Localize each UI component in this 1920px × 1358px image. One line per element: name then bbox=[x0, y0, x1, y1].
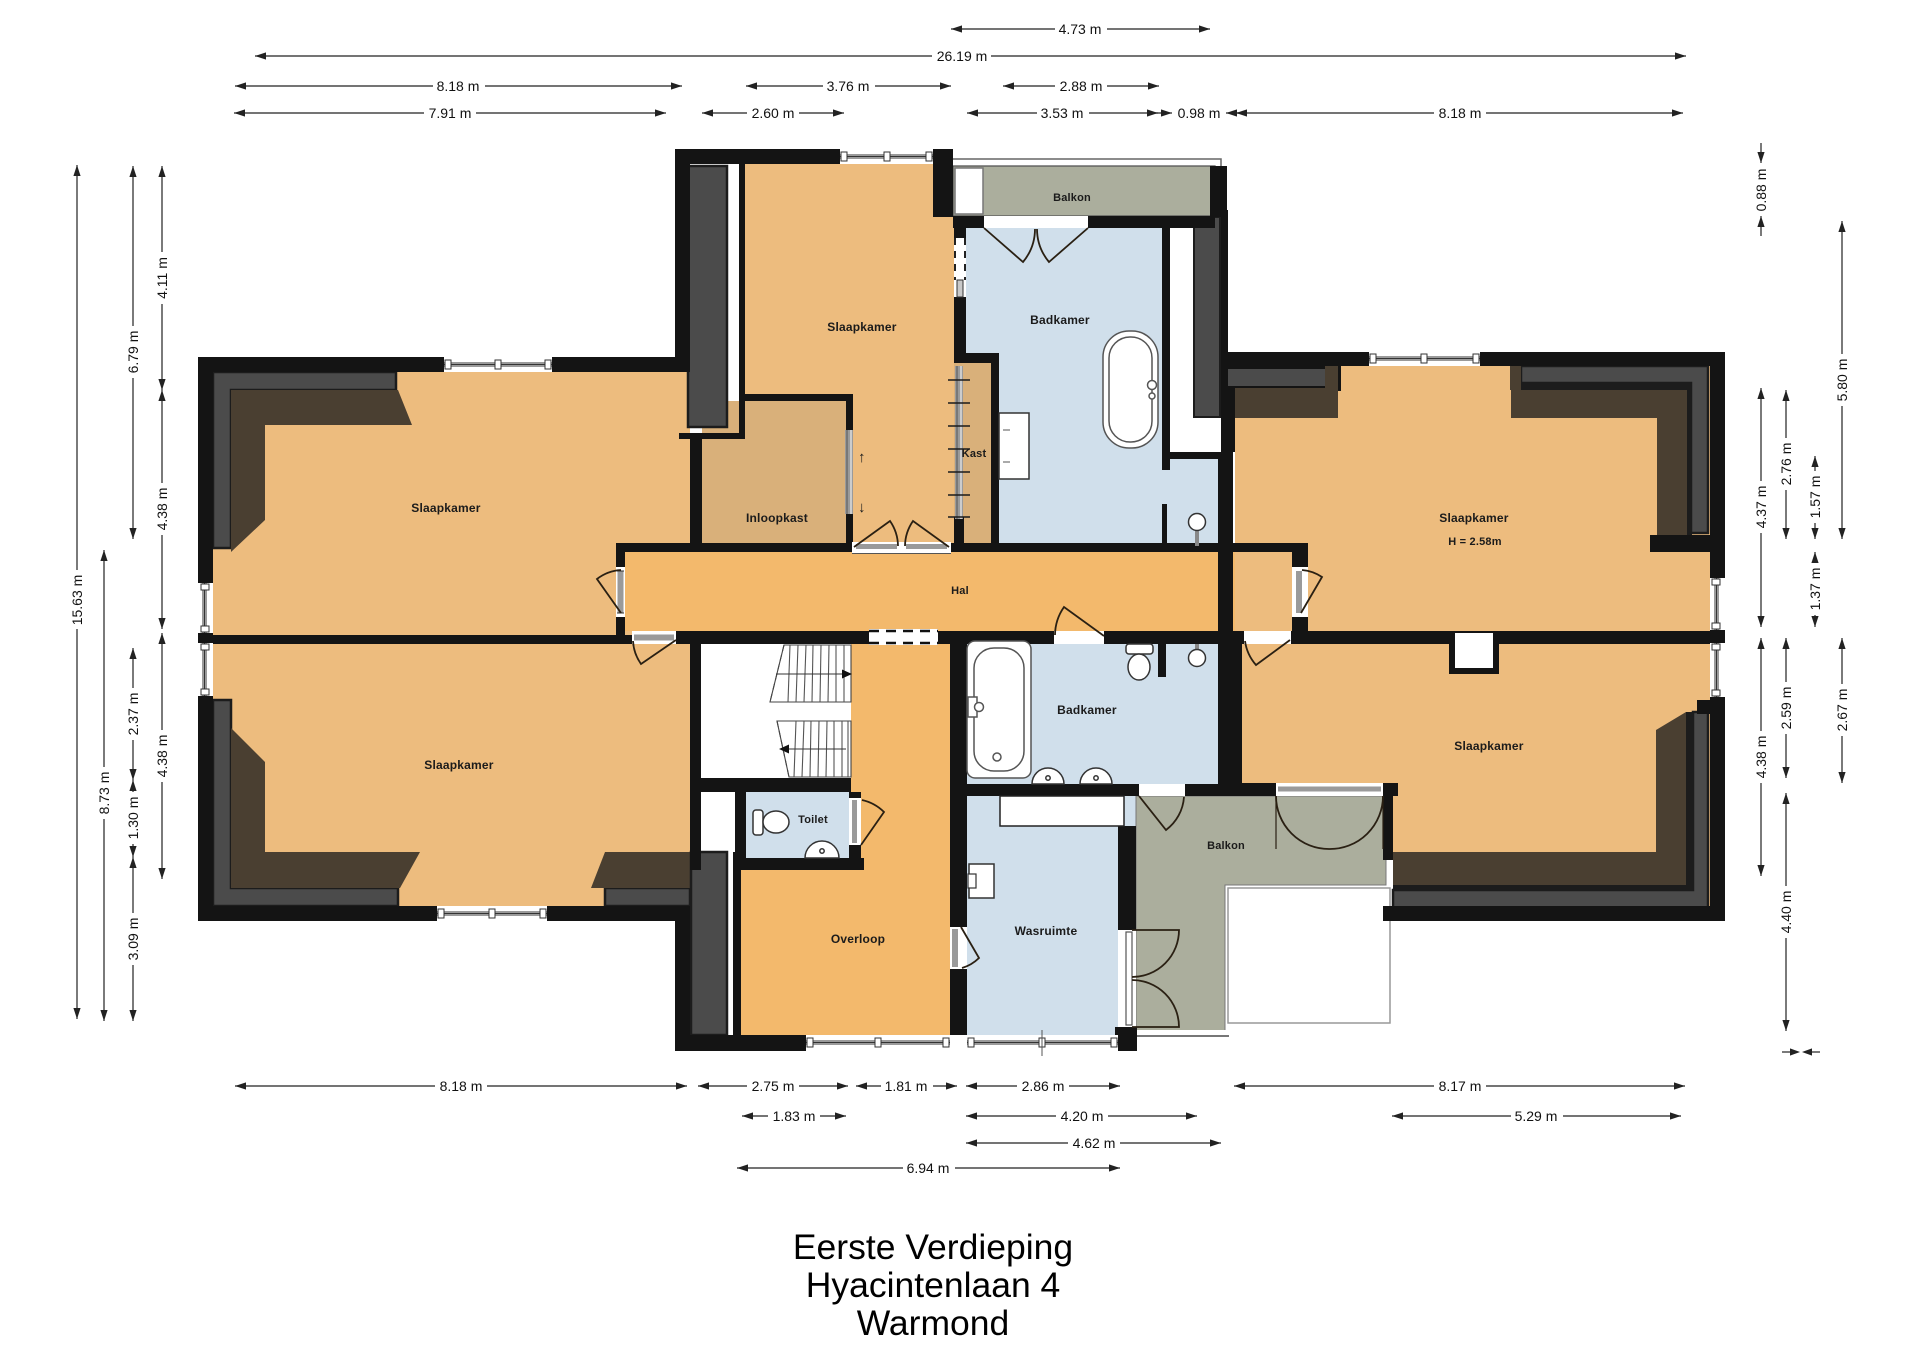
svg-text:Slaapkamer: Slaapkamer bbox=[1439, 511, 1509, 525]
svg-text:1.81 m: 1.81 m bbox=[885, 1078, 928, 1094]
svg-text:Kast: Kast bbox=[962, 448, 987, 460]
svg-text:↑: ↑ bbox=[858, 449, 866, 466]
svg-text:Inloopkast: Inloopkast bbox=[746, 511, 808, 525]
svg-text:2.59 m: 2.59 m bbox=[1778, 687, 1794, 730]
svg-text:Slaapkamer: Slaapkamer bbox=[424, 758, 494, 772]
svg-text:1.30 m: 1.30 m bbox=[125, 797, 141, 840]
svg-text:26.19 m: 26.19 m bbox=[937, 48, 988, 64]
svg-text:4.20 m: 4.20 m bbox=[1061, 1108, 1104, 1124]
svg-text:0.88 m: 0.88 m bbox=[1753, 169, 1769, 212]
svg-text:H = 2.58m: H = 2.58m bbox=[1448, 536, 1501, 548]
svg-text:4.11 m: 4.11 m bbox=[154, 257, 170, 299]
svg-text:Hyacintenlaan 4: Hyacintenlaan 4 bbox=[806, 1265, 1061, 1305]
svg-text:Balkon: Balkon bbox=[1053, 192, 1091, 204]
svg-text:2.37 m: 2.37 m bbox=[125, 693, 141, 736]
svg-text:Badkamer: Badkamer bbox=[1030, 313, 1090, 327]
svg-text:8.17 m: 8.17 m bbox=[1439, 1078, 1482, 1094]
svg-text:Warmond: Warmond bbox=[857, 1303, 1010, 1343]
svg-text:Eerste Verdieping: Eerste Verdieping bbox=[793, 1227, 1073, 1267]
svg-text:8.73 m: 8.73 m bbox=[96, 772, 112, 815]
svg-text:5.80 m: 5.80 m bbox=[1834, 359, 1850, 402]
svg-text:1.57 m: 1.57 m bbox=[1807, 476, 1823, 519]
svg-text:3.09 m: 3.09 m bbox=[125, 918, 141, 961]
svg-text:4.37 m: 4.37 m bbox=[1753, 486, 1769, 529]
svg-text:2.60 m: 2.60 m bbox=[752, 105, 795, 121]
svg-text:Slaapkamer: Slaapkamer bbox=[827, 320, 897, 334]
svg-text:4.62 m: 4.62 m bbox=[1073, 1135, 1116, 1151]
svg-text:2.88 m: 2.88 m bbox=[1060, 78, 1103, 94]
svg-text:Toilet: Toilet bbox=[798, 814, 828, 826]
svg-text:4.73 m: 4.73 m bbox=[1059, 21, 1102, 37]
svg-text:2.76 m: 2.76 m bbox=[1778, 443, 1794, 486]
svg-text:3.76 m: 3.76 m bbox=[827, 78, 870, 94]
svg-text:Slaapkamer: Slaapkamer bbox=[1454, 739, 1524, 753]
svg-text:0.98 m: 0.98 m bbox=[1178, 105, 1221, 121]
svg-text:Wasruimte: Wasruimte bbox=[1015, 924, 1078, 938]
svg-text:Balkon: Balkon bbox=[1207, 840, 1245, 852]
svg-text:1.37 m: 1.37 m bbox=[1807, 568, 1823, 611]
svg-text:2.86 m: 2.86 m bbox=[1022, 1078, 1065, 1094]
svg-text:4.38 m: 4.38 m bbox=[154, 488, 170, 531]
svg-text:5.29 m: 5.29 m bbox=[1515, 1108, 1558, 1124]
svg-text:8.18 m: 8.18 m bbox=[1439, 105, 1482, 121]
svg-text:Slaapkamer: Slaapkamer bbox=[411, 501, 481, 515]
svg-text:1.83 m: 1.83 m bbox=[773, 1108, 816, 1124]
svg-text:↓: ↓ bbox=[858, 499, 866, 516]
svg-text:7.91 m: 7.91 m bbox=[429, 105, 472, 121]
svg-text:6.79 m: 6.79 m bbox=[125, 331, 141, 374]
svg-text:6.94 m: 6.94 m bbox=[907, 1160, 950, 1176]
svg-text:4.38 m: 4.38 m bbox=[154, 735, 170, 778]
svg-text:2.67 m: 2.67 m bbox=[1834, 689, 1850, 732]
svg-text:3.53 m: 3.53 m bbox=[1041, 105, 1084, 121]
svg-text:8.18 m: 8.18 m bbox=[437, 78, 480, 94]
svg-text:8.18 m: 8.18 m bbox=[440, 1078, 483, 1094]
svg-text:Hal: Hal bbox=[951, 585, 969, 597]
svg-text:Overloop: Overloop bbox=[831, 932, 885, 946]
svg-text:Badkamer: Badkamer bbox=[1057, 703, 1117, 717]
svg-text:4.38 m: 4.38 m bbox=[1753, 736, 1769, 779]
svg-text:15.63 m: 15.63 m bbox=[69, 575, 85, 626]
svg-text:2.75 m: 2.75 m bbox=[752, 1078, 795, 1094]
svg-text:4.40 m: 4.40 m bbox=[1778, 891, 1794, 934]
